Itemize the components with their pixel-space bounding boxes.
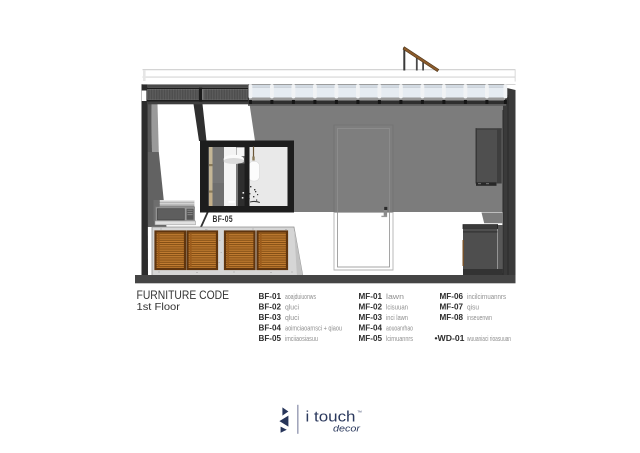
svg-text:BF-02: BF-02 bbox=[259, 303, 282, 312]
svg-text:inci lawn: inci lawn bbox=[386, 313, 408, 322]
svg-text:lcisuuan: lcisuuan bbox=[386, 303, 408, 312]
svg-text:MF-07: MF-07 bbox=[440, 303, 464, 312]
svg-text:wuuaniaci rioasuuan: wuuaniaci rioasuuan bbox=[466, 334, 511, 343]
svg-text:aouoanrhao: aouoanrhao bbox=[386, 324, 413, 333]
svg-text:inseuenwn: inseuenwn bbox=[467, 313, 492, 322]
svg-text:qluci: qluci bbox=[285, 313, 299, 322]
svg-text:qluci: qluci bbox=[285, 303, 299, 312]
svg-text:MF-04: MF-04 bbox=[359, 324, 383, 333]
svg-text:BF-03: BF-03 bbox=[259, 313, 282, 322]
svg-text:decor: decor bbox=[333, 424, 361, 435]
svg-text:BF-04: BF-04 bbox=[259, 324, 282, 333]
svg-text:MF-03: MF-03 bbox=[359, 313, 383, 322]
svg-text:incilcirnuannrs: incilcirnuannrs bbox=[467, 292, 506, 301]
svg-text:lawn: lawn bbox=[386, 292, 404, 301]
svg-text:imciiaosiasuu: imciiaosiasuu bbox=[285, 334, 318, 343]
svg-text:MF-08: MF-08 bbox=[440, 313, 464, 322]
svg-text:BF-01: BF-01 bbox=[259, 292, 282, 301]
svg-text:•WD-01: •WD-01 bbox=[435, 334, 466, 343]
svg-text:BF-05: BF-05 bbox=[213, 214, 234, 224]
svg-text:MF-06: MF-06 bbox=[440, 292, 464, 301]
svg-text:MF-02: MF-02 bbox=[359, 303, 383, 312]
svg-text:MF-01: MF-01 bbox=[359, 292, 383, 301]
svg-text:aoimciaoarnsci + qiaou: aoimciaoarnsci + qiaou bbox=[285, 324, 342, 333]
svg-text:™: ™ bbox=[357, 410, 362, 416]
svg-text:MF-05: MF-05 bbox=[359, 334, 383, 343]
svg-text:1st Floor: 1st Floor bbox=[137, 301, 181, 313]
svg-text:aoajduiuonws: aoajduiuonws bbox=[285, 292, 316, 301]
svg-text:qisu: qisu bbox=[467, 303, 479, 312]
svg-text:BF-05: BF-05 bbox=[259, 334, 282, 343]
svg-text:lcirnuannrs: lcirnuannrs bbox=[386, 334, 413, 343]
